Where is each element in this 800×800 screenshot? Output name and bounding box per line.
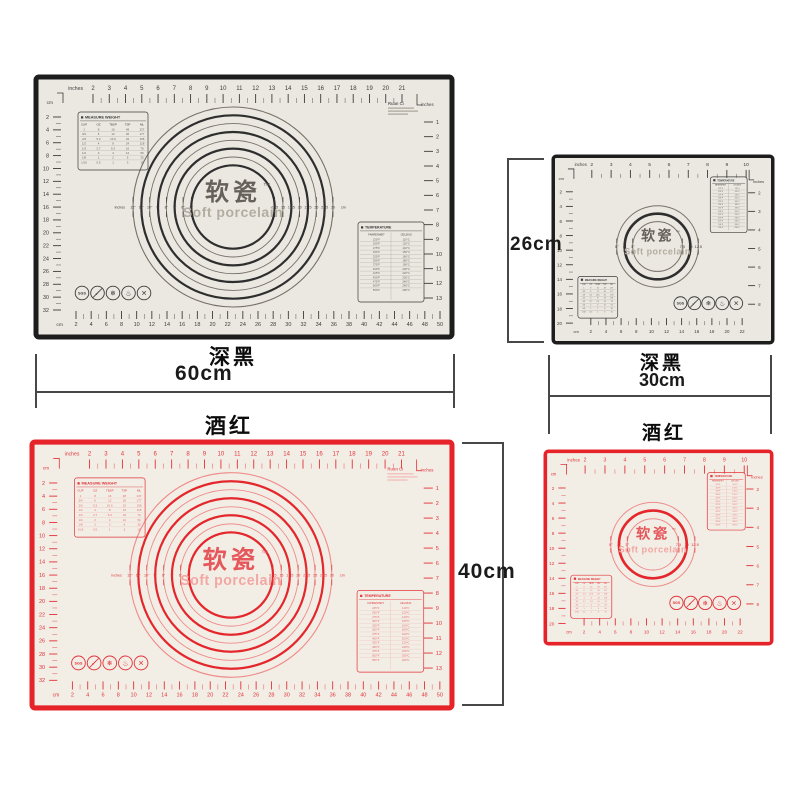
- table-cell: 220°C: [732, 511, 738, 513]
- brand-chinese: 软瓷: [203, 546, 260, 574]
- table-cell: 250°F: [372, 611, 380, 615]
- table-cell: 2: [590, 305, 591, 307]
- ruler-number: 2: [436, 501, 439, 507]
- ruler-number: 28: [270, 322, 276, 328]
- dimension-line: [548, 395, 772, 397]
- ruler-number: 11: [436, 636, 442, 642]
- ruler-number: 13: [436, 296, 442, 302]
- brand-trademark: ™: [261, 549, 268, 558]
- table-cell: 110°C: [733, 484, 739, 486]
- table-cell: 230°C: [402, 645, 410, 649]
- table-cell: 2: [584, 604, 585, 606]
- label-large-red-color: 酒红: [28, 410, 430, 440]
- ruler-number: 22: [740, 329, 745, 334]
- ruler-unit: inches: [575, 162, 587, 167]
- circle-diameter-label: 30: [331, 205, 335, 209]
- table-cell: 16: [123, 513, 127, 517]
- table-cell: 160°C: [735, 201, 741, 203]
- ruler-unit: cm: [43, 467, 49, 472]
- ruler-number: 6: [46, 141, 49, 147]
- ruler-unit: cm: [47, 101, 53, 106]
- corner-print-title: Ruan Ci: [388, 101, 404, 106]
- ruler-number: 46: [407, 322, 413, 328]
- table-cell: 12: [126, 151, 130, 155]
- table-cell: 450°F: [715, 514, 721, 516]
- brand-english: Soft porcelain: [180, 573, 281, 589]
- ruler-unit: cm: [53, 693, 60, 699]
- table-cell: 2/3: [576, 594, 579, 596]
- table-cell: 2: [597, 308, 598, 310]
- table-bullet: [710, 475, 712, 477]
- heat-resistant-icon-glyph: ♨: [122, 659, 128, 667]
- table-title: MEASURE WEIGHT: [81, 481, 117, 485]
- ruler-number: 2: [42, 481, 45, 487]
- table-header: CELSIUS: [733, 185, 741, 187]
- ruler-unit: inches: [567, 457, 580, 462]
- ruler-number: 16: [43, 205, 49, 211]
- table-title: TEMPERATURE: [717, 179, 735, 182]
- ruler-number: 12: [664, 329, 669, 334]
- ruler-number: 8: [46, 153, 49, 159]
- ruler-number: 10: [649, 329, 654, 334]
- ruler-number: 16: [694, 329, 699, 334]
- table-cell: 240°C: [402, 280, 410, 284]
- table-cell: 225°F: [715, 484, 721, 486]
- table-header: TBSP: [589, 583, 595, 585]
- ruler-number: 8: [117, 693, 120, 699]
- table-cell: 237: [137, 494, 142, 498]
- table-cell: 177: [610, 291, 613, 293]
- ruler-number: 11: [234, 450, 241, 457]
- dimension-60cm: 60cm: [35, 354, 455, 408]
- ruler-number: 15: [300, 450, 307, 457]
- table-cell: 237: [604, 587, 607, 589]
- table-header: ML: [610, 284, 613, 286]
- ruler-number: 30: [39, 665, 45, 671]
- ruler-number: 6: [663, 457, 666, 463]
- table-cell: 36: [597, 590, 599, 592]
- table-header: ML: [137, 489, 141, 493]
- ruler-number: 5: [436, 546, 439, 552]
- ruler-number: 16: [557, 292, 562, 297]
- ruler-number: 42: [376, 693, 382, 699]
- circle-unit-label: cm: [341, 205, 346, 209]
- brand-english: Soft porcelain: [183, 204, 283, 220]
- circle-diameter-label: 22.5: [303, 573, 310, 577]
- table-cell: 1/4: [583, 305, 586, 307]
- ruler-number: 8: [436, 222, 439, 228]
- ruler-unit: inches: [421, 468, 435, 473]
- ruler-number: 17: [334, 86, 341, 92]
- ruler-number: 26: [255, 322, 261, 328]
- brand-trademark: ™: [671, 527, 675, 532]
- table-cell: 275°F: [373, 246, 381, 250]
- ruler-number: 5: [137, 450, 141, 457]
- dimension-40cm-text: 40cm: [458, 560, 516, 584]
- ruler-number: 12: [252, 86, 259, 92]
- table-cell: 220°C: [735, 214, 741, 216]
- ruler-number: 9: [436, 237, 439, 243]
- table-cell: 1/2: [583, 298, 586, 300]
- ruler-number: 32: [299, 693, 305, 699]
- table-cell: 1/3: [82, 146, 86, 150]
- ruler-number: 10: [644, 630, 650, 635]
- table-cell: 5.3: [590, 601, 593, 603]
- ruler-number: 12: [43, 179, 49, 185]
- table-cell: 0.5: [590, 312, 593, 314]
- ruler-number: 42: [376, 322, 382, 328]
- table-cell: 475°F: [373, 280, 381, 284]
- ruler-number: 7: [436, 208, 439, 214]
- ruler-number: 10: [43, 166, 49, 172]
- table-header: CUP: [81, 123, 87, 127]
- table-cell: 1: [597, 312, 598, 314]
- table-bullet: [581, 279, 583, 281]
- table-cell: 5.3: [590, 294, 593, 296]
- sgs-badge-icon-glyph: SGS: [78, 291, 86, 295]
- table-cell: 500°F: [372, 653, 380, 657]
- circle-diameter-label: 20: [298, 205, 302, 209]
- table-cell: 160°C: [402, 623, 410, 627]
- ruler-number: 3: [436, 149, 439, 155]
- circle-diameter-label: 27.5: [320, 573, 327, 577]
- dimension-cap: [35, 354, 37, 408]
- sgs-badge-icon-glyph: SGS: [74, 661, 82, 665]
- ruler-number: 24: [39, 626, 45, 632]
- table-header: TBSP: [595, 284, 601, 286]
- table-cell: 120°C: [402, 242, 410, 246]
- ruler-number: 4: [436, 531, 439, 537]
- ruler-number: 6: [42, 507, 45, 513]
- pastry-mat-product-collage: inches23456789101112131415161718192021cm…: [0, 0, 800, 800]
- table-cell: 8: [590, 287, 591, 289]
- table-cell: 160°C: [402, 254, 410, 258]
- table-cell: 1/3: [576, 601, 579, 603]
- corner-print-line: [388, 111, 418, 112]
- table-cell: 48: [123, 494, 127, 498]
- circle-diameter-label: 30: [330, 573, 334, 577]
- table-cell: 16: [597, 287, 599, 289]
- table-cell: 1/4: [78, 518, 82, 522]
- ruler-number: 18: [557, 306, 562, 311]
- large-black-mat-graphic: inches23456789101112131415161718192021cm…: [33, 74, 455, 340]
- ruler-number: 8: [703, 457, 706, 463]
- dimension-line: [507, 158, 509, 343]
- ruler-number: 3: [604, 457, 607, 463]
- table-cell: 425°F: [372, 641, 380, 645]
- ruler-number: 2: [436, 134, 439, 140]
- ruler-number: 10: [436, 621, 442, 627]
- ruler-number: 16: [317, 86, 324, 92]
- ruler-number: 10: [220, 86, 227, 92]
- table-cell: 0.5: [96, 160, 100, 164]
- table-cell: 150°C: [402, 619, 410, 623]
- ruler-number: 8: [42, 520, 45, 526]
- ruler-unit: cm: [56, 323, 63, 328]
- dimension-60cm-text: 60cm: [175, 362, 233, 386]
- table-cell: 24: [123, 508, 127, 512]
- table-cell: 290°C: [735, 227, 741, 229]
- table-cell: 110°C: [403, 238, 410, 242]
- dimension-40cm: 40cm: [458, 442, 504, 706]
- ruler-number: 6: [105, 322, 108, 328]
- table-cell: 200°C: [735, 211, 741, 213]
- ruler-number: 1: [436, 486, 439, 492]
- ruler-number: 20: [207, 693, 213, 699]
- ruler-number: 3: [610, 162, 613, 168]
- table-cell: 5.3: [596, 301, 599, 303]
- ruler-number: 18: [549, 606, 555, 611]
- dimension-cap: [462, 442, 504, 444]
- table-cell: 290°C: [732, 525, 738, 527]
- ruler-number: 14: [679, 329, 684, 334]
- table-header: FAHRENHEIT: [367, 601, 384, 605]
- ruler-number: 14: [675, 630, 681, 635]
- circle-unit-label: inches: [115, 205, 126, 209]
- ruler-number: 40: [361, 322, 367, 328]
- brand-chinese: 软瓷: [205, 178, 261, 206]
- table-cell: 1/16: [582, 312, 586, 314]
- ruler-number: 20: [382, 86, 389, 92]
- table-header: TBSP: [106, 489, 114, 493]
- table-cell: 200°C: [402, 267, 410, 271]
- table-cell: 79: [140, 146, 144, 150]
- table-cell: 290°C: [402, 658, 410, 662]
- table-cell: 5.3: [111, 146, 115, 150]
- circle-diameter-label: 12": [127, 573, 133, 577]
- table-cell: 550°F: [372, 658, 380, 662]
- table-cell: 240°C: [735, 221, 741, 223]
- ruler-number: 12: [436, 281, 442, 287]
- ruler-number: 40: [360, 693, 366, 699]
- ruler-number: 6: [757, 563, 760, 568]
- table-cell: 237: [140, 128, 145, 132]
- ruler-number: 4: [629, 162, 632, 168]
- table-cell: 0.5: [583, 612, 586, 614]
- ruler-number: 4: [121, 450, 125, 457]
- ruler-number: 50: [437, 322, 443, 328]
- table-cell: 118: [140, 142, 145, 146]
- table-cell: 16: [108, 494, 112, 498]
- table-cell: 2/3: [82, 137, 86, 141]
- table-cell: 12: [604, 305, 606, 307]
- table-cell: 190°C: [732, 504, 738, 506]
- ruler-unit: inches: [421, 102, 434, 107]
- dimension-cap: [453, 354, 455, 408]
- table-cell: 3: [604, 312, 605, 314]
- ruler-number: 11: [236, 86, 243, 92]
- table-cell: 16: [604, 301, 606, 303]
- ruler-number: 30: [284, 693, 290, 699]
- ruler-number: 2: [74, 322, 77, 328]
- brand-trademark: ™: [675, 230, 679, 235]
- ruler-number: 18: [43, 218, 49, 224]
- ruler-number: 48: [421, 693, 427, 699]
- table-cell: 24: [604, 298, 606, 300]
- ruler-number: 6: [101, 693, 104, 699]
- ruler-number: 12: [39, 547, 45, 553]
- table-cell: 158: [137, 503, 142, 507]
- ruler-number: 3: [757, 506, 760, 511]
- ruler-number: 13: [436, 666, 442, 672]
- ruler-number: 26: [39, 639, 45, 645]
- table-cell: 500°F: [373, 284, 381, 288]
- table-cell: 180°C: [732, 501, 738, 503]
- table-cell: 110°C: [402, 606, 409, 610]
- ruler-unit: inches: [751, 475, 762, 480]
- brand-english: Soft porcelain: [624, 246, 691, 256]
- ruler-number: 6: [154, 450, 158, 457]
- ruler-number: 2: [46, 115, 49, 121]
- table-cell: 150°C: [732, 494, 738, 496]
- table-cell: 6: [584, 590, 585, 592]
- circle-diameter-label: 27.5: [321, 205, 328, 209]
- table-cell: 32: [597, 594, 599, 596]
- table-cell: 190°C: [735, 208, 741, 210]
- ruler-number: 30: [43, 295, 49, 301]
- table-header: TSP: [122, 489, 128, 493]
- heat-resistant-icon-glyph: ♨: [719, 301, 725, 308]
- table-cell: 475°F: [715, 518, 721, 520]
- table-title: MEASURE WEIGHT: [85, 116, 121, 120]
- ruler-number: 13: [267, 450, 274, 457]
- table-cell: 12: [597, 291, 599, 293]
- ruler-number: 18: [350, 86, 357, 92]
- table-cell: 8: [591, 597, 592, 599]
- table-cell: 450°F: [372, 645, 380, 649]
- ruler-number: 7: [436, 576, 439, 582]
- ruler-number: 17: [332, 450, 339, 457]
- table-cell: 2: [591, 608, 592, 610]
- circle-diameter-label: 12": [130, 205, 136, 209]
- ruler-number: 14: [161, 693, 167, 699]
- table-cell: 150°C: [735, 198, 741, 200]
- ruler-number: 46: [406, 693, 412, 699]
- ruler-number: 2: [583, 630, 586, 635]
- circle-unit-label: cm: [340, 573, 345, 577]
- table-title: TEMPERATURE: [364, 594, 391, 598]
- ruler-number: 14: [557, 277, 562, 282]
- table-cell: 240°C: [402, 649, 410, 653]
- table-cell: 2.7: [590, 301, 593, 303]
- circle-diameter-label: 25: [313, 573, 317, 577]
- ruler-number: 32: [43, 308, 49, 314]
- table-header: CELSIUS: [401, 233, 412, 237]
- table-cell: 1: [583, 287, 584, 289]
- table-cell: 59: [137, 518, 141, 522]
- ruler-number: 4: [436, 164, 439, 170]
- table-cell: 400°F: [372, 636, 380, 640]
- table-cell: 300°F: [715, 494, 721, 496]
- no-knife-icon-glyph: ✕: [141, 290, 147, 297]
- ruler-number: 21: [398, 450, 405, 457]
- table-cell: 1/2: [576, 597, 579, 599]
- ruler-number: 9: [436, 606, 439, 612]
- circle-diameter-label: 25: [314, 205, 318, 209]
- circle-diameter-label: 11": [139, 205, 145, 209]
- freezer-safe-icon-glyph: ❄: [110, 289, 116, 297]
- ruler-number: 6: [436, 561, 439, 567]
- table-cell: 180°C: [402, 628, 410, 632]
- brand-trademark: ™: [263, 181, 270, 190]
- ruler-number: 9: [203, 450, 207, 457]
- table-cell: 230°C: [735, 217, 741, 219]
- table-cell: 3/4: [583, 291, 586, 293]
- ruler-number: 12: [557, 263, 562, 268]
- circle-diameter-label: 10": [147, 205, 153, 209]
- ruler-number: 8: [120, 322, 123, 328]
- ruler-number: 16: [316, 450, 323, 457]
- dimension-cap: [462, 704, 504, 706]
- ruler-number: 4: [86, 693, 89, 699]
- ruler-number: 4: [623, 457, 626, 463]
- table-cell: 177: [140, 132, 145, 136]
- table-cell: 5.3: [96, 137, 100, 141]
- table-cell: 36: [126, 132, 130, 136]
- ruler-number: 26: [253, 693, 259, 699]
- ruler-number: 5: [648, 162, 651, 168]
- table-cell: 12: [111, 132, 115, 136]
- table-cell: 12: [590, 590, 592, 592]
- ruler-number: 22: [222, 693, 228, 699]
- ruler-number: 20: [549, 621, 555, 626]
- table-cell: 180°C: [735, 204, 741, 206]
- ruler-number: 14: [285, 86, 292, 92]
- table-cell: 16: [597, 601, 599, 603]
- table-cell: 12: [597, 604, 599, 606]
- ruler-number: 20: [209, 322, 215, 328]
- table-cell: 1/8: [576, 608, 579, 610]
- table-cell: 6: [598, 608, 599, 610]
- ruler-number: 26: [43, 269, 49, 275]
- ruler-number: 8: [552, 531, 555, 536]
- ruler-number: 20: [725, 329, 730, 334]
- ruler-number: 18: [192, 693, 198, 699]
- table-title: MEASURE WEIGHT: [578, 578, 601, 581]
- table-cell: 160°C: [732, 497, 738, 499]
- table-cell: 190°C: [402, 263, 410, 267]
- table-cell: 1/3: [583, 301, 586, 303]
- ruler-number: 3: [436, 516, 439, 522]
- ruler-number: 12: [549, 561, 555, 566]
- table-cell: 300°F: [372, 619, 380, 623]
- ruler-number: 2: [590, 162, 593, 168]
- table-header: FAHRENHEIT: [368, 233, 385, 237]
- circle-diameter-label: 10": [144, 573, 150, 577]
- ruler-number: 6: [552, 516, 555, 521]
- ruler-number: 2: [757, 487, 760, 492]
- table-header: TSP: [125, 123, 131, 127]
- ruler-number: 24: [43, 256, 49, 262]
- table-cell: 0.5: [93, 527, 97, 531]
- circle-diameter-label: 11": [136, 573, 142, 577]
- table-cell: 200°C: [402, 636, 410, 640]
- table-cell: 1/4: [82, 151, 86, 155]
- mat-large-black: inches23456789101112131415161718192021cm…: [33, 74, 455, 340]
- brand-chinese: 软瓷: [636, 524, 670, 542]
- ruler-number: 2: [584, 457, 587, 463]
- ruler-number: 7: [757, 583, 760, 588]
- circle-diameter-label: 12.5: [691, 542, 699, 547]
- table-cell: 375°F: [372, 632, 380, 636]
- table-cell: 36: [604, 291, 606, 293]
- ruler-number: 20: [722, 630, 728, 635]
- table-cell: 325°F: [715, 497, 721, 499]
- table-cell: 30: [137, 523, 141, 527]
- ruler-number: 14: [164, 322, 170, 328]
- ruler-unit: inches: [65, 451, 80, 457]
- ruler-number: 6: [436, 193, 439, 199]
